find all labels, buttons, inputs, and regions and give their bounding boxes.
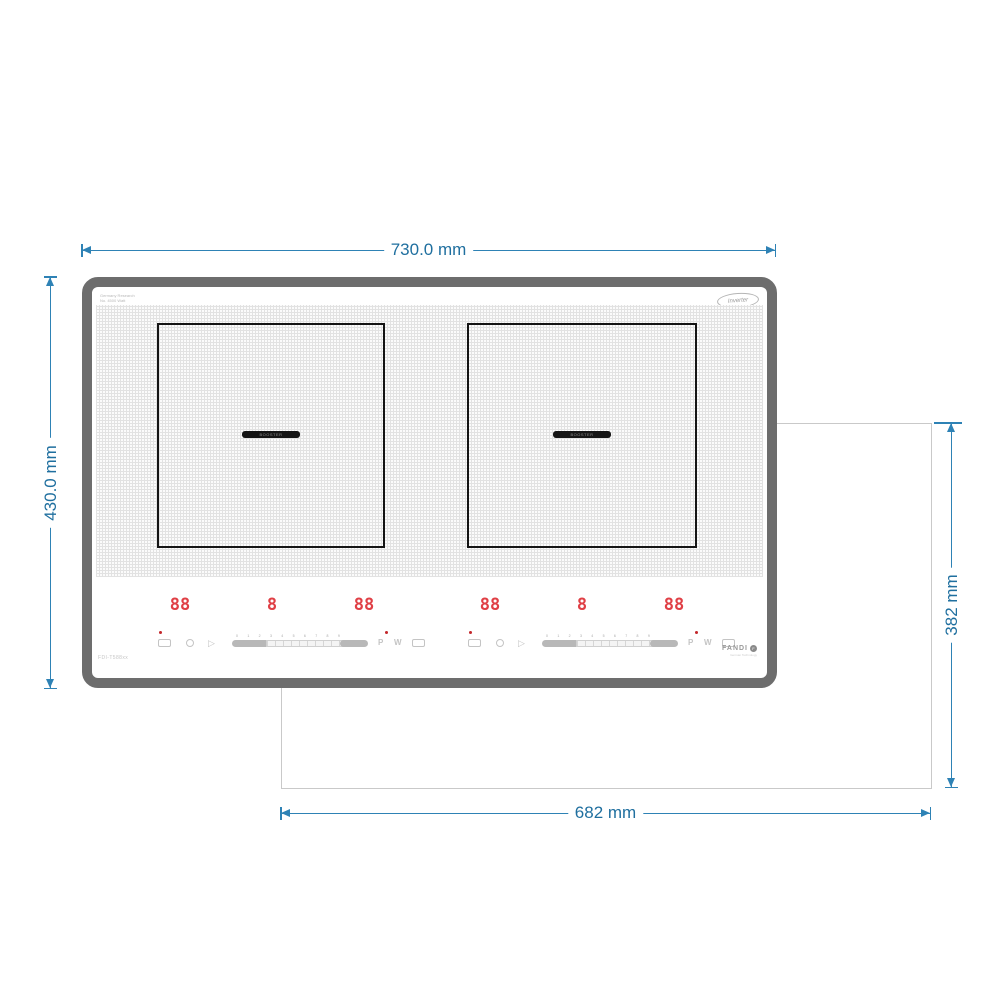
ceramic-surface: BOOSTER BOOSTER [96, 305, 763, 577]
dimension-arrow [921, 809, 930, 817]
booster-bar: BOOSTER [242, 431, 300, 438]
fine-print-line2: No. 4500 Watt [100, 298, 135, 303]
level-display: 8 [560, 595, 604, 615]
cooking-zone-left: BOOSTER [157, 323, 385, 548]
level-display: 8 [250, 595, 294, 615]
dimension-cutout-height-label: 382 mm [942, 567, 962, 642]
start-icon: ▷ [518, 639, 525, 648]
start-icon: ▷ [208, 639, 215, 648]
dimension-arrow [947, 778, 955, 787]
slider-end-cap [340, 640, 368, 647]
slider-track [576, 640, 654, 647]
power-icon [496, 639, 504, 647]
cooktop-body: Germany Research No. 4500 Watt Inverter … [82, 277, 777, 688]
indicator-dot [159, 631, 162, 634]
brand-row: FANDI F [722, 645, 757, 652]
lock-icon [158, 639, 171, 647]
boost-p-label: P [688, 638, 693, 647]
power-slider: 0 1 2 3 4 5 6 7 8 9 [542, 640, 678, 648]
fine-print: Germany Research No. 4500 Watt [100, 293, 135, 303]
control-group-left: 88 8 88 ▷ 0 1 2 3 4 5 6 7 8 9 P W [144, 595, 434, 657]
indicator-dot [385, 631, 388, 634]
cooking-zone-right: BOOSTER [467, 323, 697, 548]
power-slider: 0 1 2 3 4 5 6 7 8 9 [232, 640, 368, 648]
brand-mark-icon: F [750, 645, 757, 652]
dimension-arrow [281, 809, 290, 817]
dimension-arrow [82, 246, 91, 254]
keep-warm-label: W [394, 638, 402, 647]
dimension-diagram: Germany Research No. 4500 Watt Inverter … [0, 0, 1000, 1000]
brand-logo: FANDI F German Technology [722, 645, 757, 657]
indicator-dot [469, 631, 472, 634]
booster-label: BOOSTER [259, 431, 282, 438]
dimension-arrow [46, 277, 54, 286]
dimension-cutout-width-label: 682 mm [568, 803, 643, 823]
dimension-left-height: 430.0 mm [50, 277, 51, 688]
dimension-cutout-width: 682 mm [281, 813, 930, 814]
slider-end-cap [542, 640, 580, 647]
slider-end-cap [232, 640, 270, 647]
indicator-dot [695, 631, 698, 634]
power-display: 88 [342, 595, 386, 615]
brand-subtext: German Technology [722, 653, 757, 657]
power-icon [186, 639, 194, 647]
inverter-badge-label: Inverter [728, 297, 749, 304]
dimension-cutout-height: 382 mm [951, 423, 952, 787]
dimension-arrow [947, 423, 955, 432]
dimension-top-width: 730.0 mm [82, 250, 775, 251]
slider-end-cap [650, 640, 678, 647]
power-display: 88 [468, 595, 512, 615]
slider-scale: 0 1 2 3 4 5 6 7 8 9 [546, 634, 654, 638]
brand-name: FANDI [722, 645, 748, 652]
dimension-arrow [46, 679, 54, 688]
power-display: 88 [652, 595, 696, 615]
dimension-top-width-label: 730.0 mm [384, 240, 474, 260]
timer-icon [412, 639, 425, 647]
slider-scale: 0 1 2 3 4 5 6 7 8 9 [236, 634, 344, 638]
lock-icon [468, 639, 481, 647]
booster-label: BOOSTER [570, 431, 593, 438]
model-code: FDI-T588xx [98, 655, 128, 661]
control-group-right: 88 8 88 ▷ 0 1 2 3 4 5 6 7 8 9 P W [454, 595, 744, 657]
dimension-arrow [766, 246, 775, 254]
booster-bar: BOOSTER [553, 431, 611, 438]
slider-track [266, 640, 344, 647]
keep-warm-label: W [704, 638, 712, 647]
boost-p-label: P [378, 638, 383, 647]
dimension-left-height-label: 430.0 mm [41, 438, 61, 528]
power-display: 88 [158, 595, 202, 615]
